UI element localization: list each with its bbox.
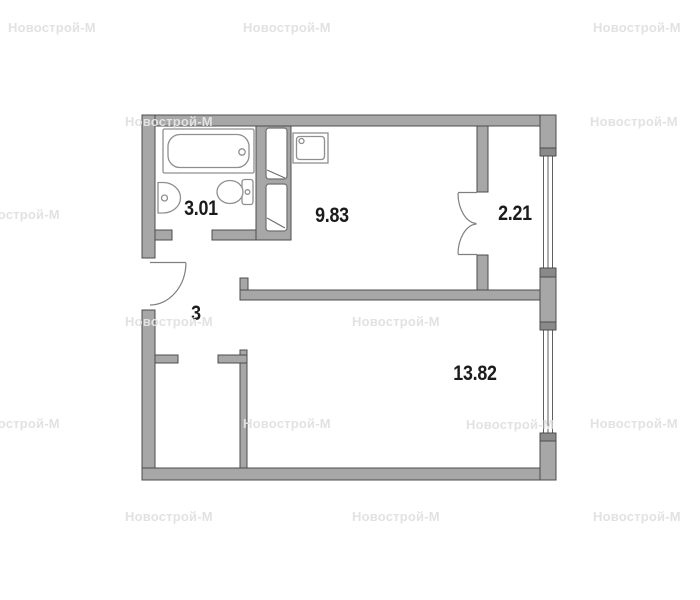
window-sill — [540, 433, 556, 441]
window-sill — [540, 148, 556, 156]
entrance-door-icon — [150, 263, 186, 306]
wall-right-bottom — [540, 441, 556, 480]
window-icon — [540, 322, 556, 441]
wall-top — [142, 115, 556, 126]
wall-bathroom-bottom — [212, 230, 256, 240]
vent-shaft-icon — [266, 128, 287, 231]
floor-plan-drawing — [0, 0, 700, 600]
wall-balcony-upper — [477, 126, 488, 192]
window-sill — [540, 322, 556, 330]
double-door-icon — [458, 193, 477, 255]
floor-plan-canvas: 3.01 9.83 2.21 3 13.82 Новострой-М Новос… — [0, 0, 700, 600]
wall-bottom — [142, 468, 556, 480]
washbasin-icon — [158, 183, 181, 214]
room-area-label-bathroom: 3.01 — [184, 197, 218, 221]
room-area-label-living-room: 13.82 — [453, 362, 496, 386]
room-area-label-kitchen: 9.83 — [315, 204, 349, 228]
toilet-icon — [217, 180, 253, 205]
room-area-label-balcony: 2.21 — [498, 202, 532, 226]
wall-closet-right — [240, 350, 247, 468]
wall-divider-stub — [240, 278, 248, 290]
wall-room-divider — [240, 290, 540, 300]
bathtub-icon — [163, 129, 254, 173]
wall-closet-stub-right — [218, 355, 247, 363]
wall-right-middle — [540, 277, 556, 322]
room-area-label-hallway: 3 — [191, 302, 201, 326]
wall-left-lower — [142, 310, 155, 480]
wall-bathroom-stub-left — [155, 230, 172, 240]
wall-left-upper — [142, 115, 155, 258]
window-sill — [540, 268, 556, 277]
window-icon — [540, 148, 556, 277]
sink-icon — [293, 133, 328, 163]
wall-right-top — [540, 115, 556, 148]
wall-closet-stub-left — [155, 355, 178, 363]
